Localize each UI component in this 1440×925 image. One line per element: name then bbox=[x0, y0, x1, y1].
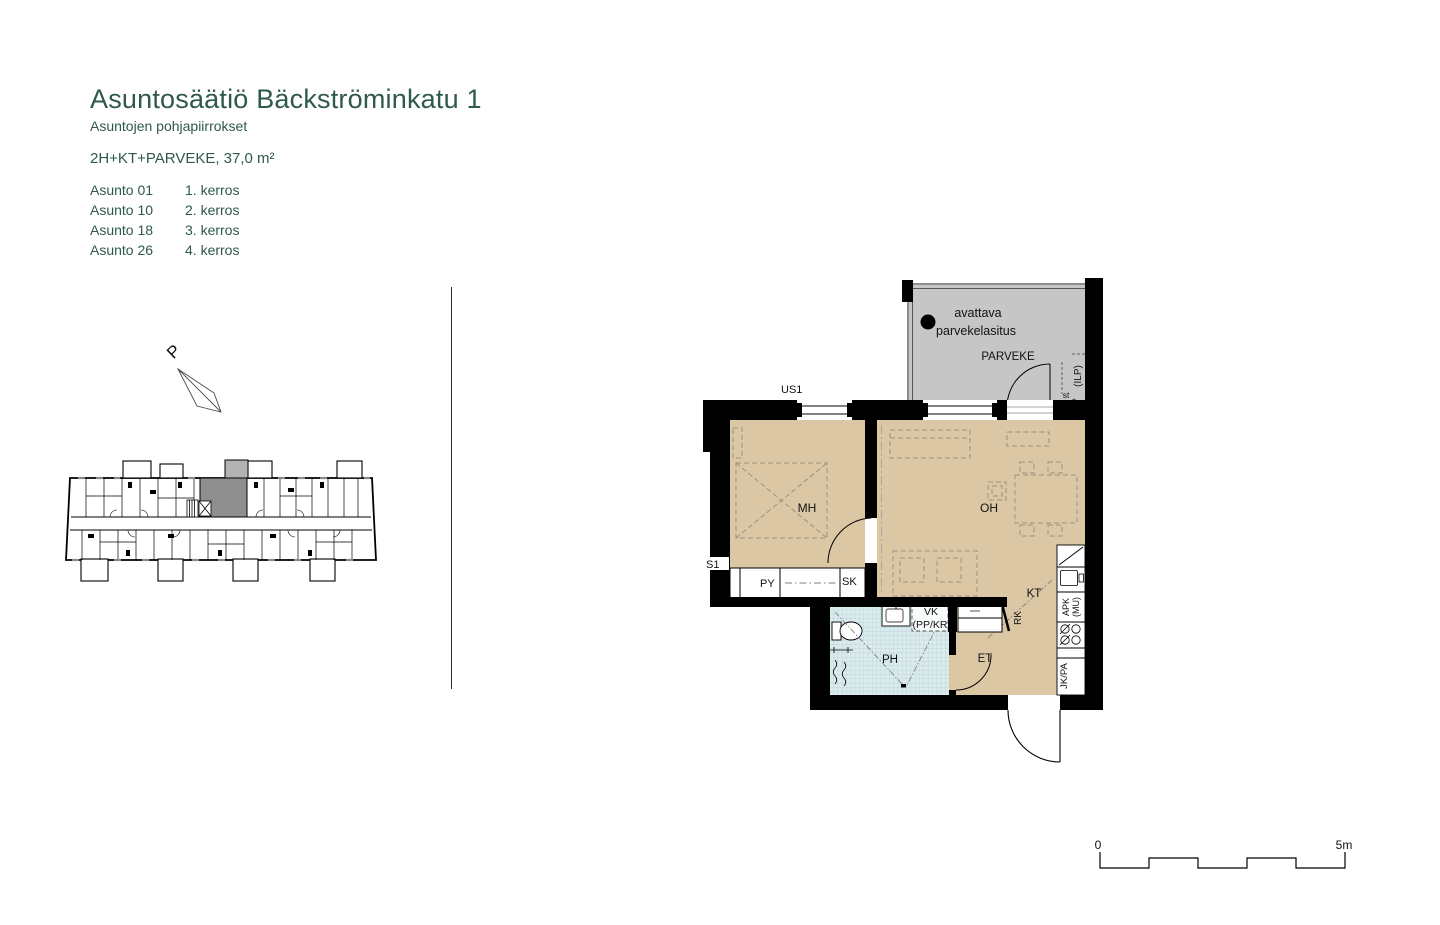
building-overview-plan bbox=[58, 438, 383, 588]
stair-core bbox=[187, 500, 211, 517]
bedroom-floor bbox=[730, 420, 865, 568]
apartment-unit: Asunto 01 bbox=[90, 180, 185, 200]
balcony-door-threshold bbox=[1007, 400, 1053, 420]
north-arrow: P bbox=[140, 330, 250, 430]
balcony-label: PARVEKE bbox=[981, 351, 1035, 363]
fridge-label: JK/PA bbox=[1059, 662, 1070, 688]
page-subtitle: Asuntojen pohjapiirrokset bbox=[90, 118, 482, 134]
window-living-room bbox=[923, 400, 997, 420]
apartment-floor: 2. kerros bbox=[185, 202, 239, 218]
highlighted-unit-balcony bbox=[225, 460, 248, 478]
entry-closet-label: RK bbox=[1013, 611, 1024, 625]
bathroom-label: PH bbox=[882, 654, 898, 666]
wall-type-us1: US1 bbox=[781, 384, 802, 396]
scale-bar: 0 5m bbox=[1085, 835, 1360, 880]
north-arrow-label: P bbox=[163, 341, 184, 363]
apartment-unit: Asunto 18 bbox=[90, 220, 185, 240]
apartment-floor: 3. kerros bbox=[185, 222, 239, 238]
apartment-unit: Asunto 10 bbox=[90, 200, 185, 220]
title-block: Asuntosäätiö Bäckströminkatu 1 Asuntojen… bbox=[90, 84, 482, 260]
window-us1 bbox=[797, 400, 852, 420]
living-room-label: OH bbox=[980, 501, 998, 515]
north-arrow-kite bbox=[178, 369, 221, 412]
wall-type-s1: S1 bbox=[706, 559, 719, 571]
apartment-list-row: Asunto 183. kerros bbox=[90, 220, 482, 240]
apartment-floor-plan: avattava parvekelasitus PARVEKE (ILP) st… bbox=[700, 270, 1110, 770]
socket-label: st bbox=[1063, 390, 1070, 400]
apartment-list: Asunto 011. kerros Asunto 102. kerros As… bbox=[90, 180, 482, 260]
balcony-glazing-note: avattava bbox=[954, 306, 1001, 320]
layout-divider-line bbox=[451, 287, 452, 689]
apartment-list-row: Asunto 102. kerros bbox=[90, 200, 482, 220]
apartment-floor: 1. kerros bbox=[185, 182, 239, 198]
kitchen-label: KT bbox=[1027, 588, 1042, 600]
apartment-unit: Asunto 26 bbox=[90, 240, 185, 260]
page-title: Asuntosäätiö Bäckströminkatu 1 bbox=[90, 84, 482, 115]
scale-end: 5m bbox=[1336, 838, 1353, 852]
dishwasher-label: APK bbox=[1061, 598, 1071, 616]
closet-sk-label: SK bbox=[842, 576, 857, 588]
scale-start: 0 bbox=[1095, 838, 1102, 852]
apartment-list-row: Asunto 264. kerros bbox=[90, 240, 482, 260]
apartment-floor: 4. kerros bbox=[185, 242, 239, 258]
heat-pump-label: (ILP) bbox=[1073, 365, 1084, 387]
glazing-note-bullet bbox=[921, 315, 936, 330]
entry-closet-rk bbox=[958, 604, 1002, 632]
washer-detail-label: (PP/KR bbox=[912, 619, 947, 631]
entrance-label: ET bbox=[978, 653, 993, 665]
bedroom-label: MH bbox=[798, 501, 817, 515]
apartment-list-row: Asunto 011. kerros bbox=[90, 180, 482, 200]
washer-label: VK bbox=[924, 606, 938, 618]
balcony-glazing-note: parvekelasitus bbox=[936, 324, 1016, 338]
dishwasher-detail-label: (MU) bbox=[1071, 597, 1081, 617]
apartment-type: 2H+KT+PARVEKE, 37,0 m² bbox=[90, 150, 482, 167]
entrance-door bbox=[1008, 710, 1060, 762]
closet-py-label: PY bbox=[760, 578, 775, 590]
balcony-floor bbox=[907, 283, 1085, 407]
